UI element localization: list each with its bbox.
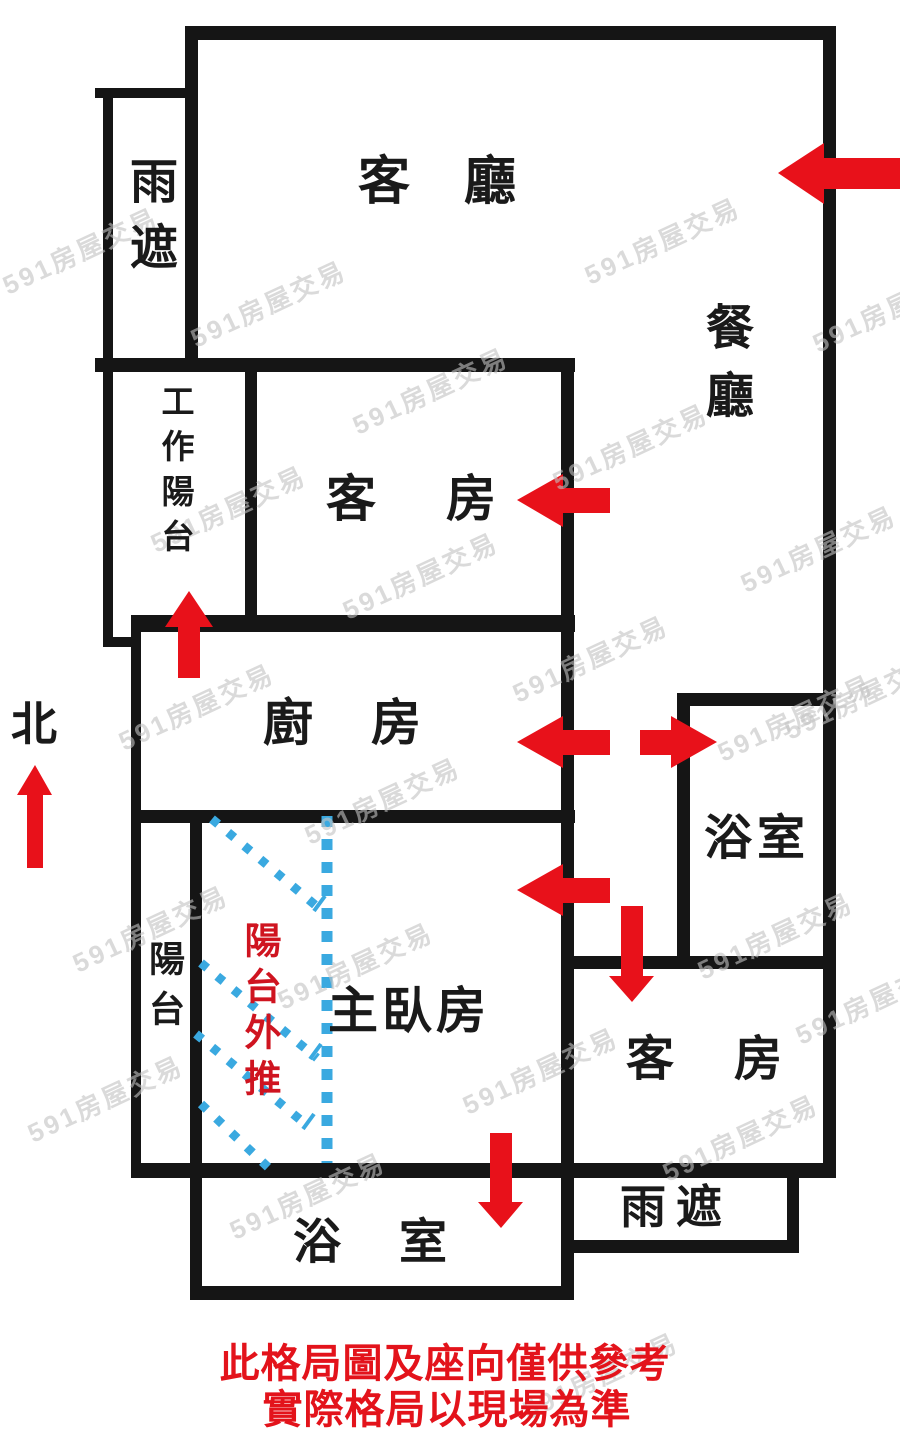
floor-plan: 591房屋交易 591房屋交易 591房屋交易 591房屋交易 591房屋交易 … bbox=[0, 0, 900, 1429]
room-label-master-bedroom: 主臥房 bbox=[328, 986, 490, 1036]
wall bbox=[190, 1286, 574, 1300]
wall bbox=[95, 358, 575, 372]
arrow-bathroom-right-icon bbox=[640, 716, 717, 768]
room-label-kitchen: 廚房 bbox=[263, 698, 479, 748]
wall bbox=[185, 26, 198, 372]
wall bbox=[561, 956, 836, 969]
pushout-dotted-line-diagonal bbox=[212, 819, 320, 909]
wall bbox=[561, 1240, 799, 1253]
room-label-dining-room: 餐廳 bbox=[700, 302, 748, 438]
room-label-living-room: 客廳 bbox=[358, 156, 570, 208]
wall bbox=[185, 26, 836, 40]
room-label-rain-shelter-bottom: 雨遮 bbox=[620, 1184, 732, 1230]
entry-arrow-dining-icon bbox=[778, 143, 900, 204]
wall bbox=[677, 693, 836, 706]
arrow-guest-room-bottom-icon bbox=[609, 906, 654, 1002]
annotation-balcony-pushout: 陽台外推 bbox=[241, 921, 278, 1105]
wall bbox=[131, 1163, 836, 1178]
wall bbox=[823, 26, 836, 1178]
room-label-rain-shelter-top: 雨遮 bbox=[124, 156, 172, 288]
wall bbox=[131, 615, 141, 1178]
room-label-work-balcony: 工作陽台 bbox=[159, 384, 192, 564]
pushout-tick bbox=[303, 1114, 314, 1129]
wall bbox=[787, 1173, 799, 1252]
wall bbox=[103, 88, 113, 647]
compass-north-arrow-icon bbox=[17, 765, 52, 868]
arrow-work-balcony-icon bbox=[165, 591, 213, 678]
room-label-balcony: 陽台 bbox=[146, 940, 182, 1040]
wall bbox=[245, 358, 257, 630]
room-label-bathroom-right: 浴室 bbox=[704, 815, 810, 863]
room-label-guest-room-bottom: 客房 bbox=[626, 1036, 842, 1084]
arrow-bathroom-bottom-icon bbox=[478, 1133, 523, 1228]
compass-north-label: 北 bbox=[11, 701, 57, 747]
wall bbox=[190, 810, 202, 1300]
disclaimer-line-2: 實際格局以現場為準 bbox=[263, 1377, 632, 1429]
room-label-guest-room-top: 客房 bbox=[326, 474, 566, 524]
room-label-bathroom-bottom: 浴室 bbox=[293, 1219, 505, 1267]
pushout-dotted-line-diagonal bbox=[201, 1104, 271, 1170]
